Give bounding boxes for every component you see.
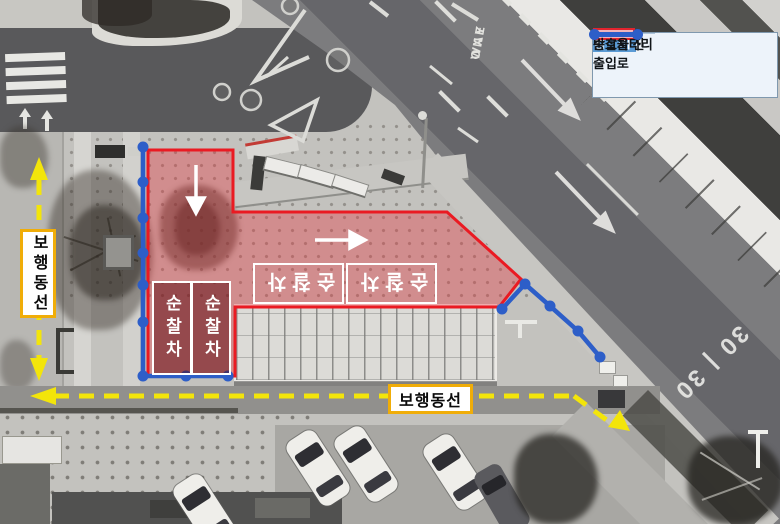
patrol-car-bay-label: 순찰차 xyxy=(191,281,231,375)
patrol-car-text: 순찰차 xyxy=(160,294,185,363)
patrol-car-text: 순찰차 xyxy=(262,269,335,298)
patrol-car-zone-label: 순찰차 xyxy=(253,263,344,304)
legend-row-fence: 방호울타리 xyxy=(593,33,655,34)
patrol-car-zone-label: 순찰차 xyxy=(346,263,437,304)
pedestrian-path-text: 보행동선 xyxy=(26,234,50,314)
aerial-site-plan: ONE WAY 30 | 30 xyxy=(0,0,780,524)
patrol-car-bay-label: 순찰차 xyxy=(152,281,192,375)
patrol-car-text: 순찰차 xyxy=(355,269,428,298)
patrol-car-text: 순찰차 xyxy=(199,294,224,363)
pedestrian-path-label-horizontal: 보행동선 xyxy=(388,384,473,414)
legend: 범 례 순찰차 진출입로 방호울타리 xyxy=(592,32,778,98)
blue-fence-swatch xyxy=(593,32,639,37)
legend-label: 방호울타리 xyxy=(593,34,653,53)
pedestrian-path-label-vertical: 보행동선 xyxy=(20,229,56,318)
